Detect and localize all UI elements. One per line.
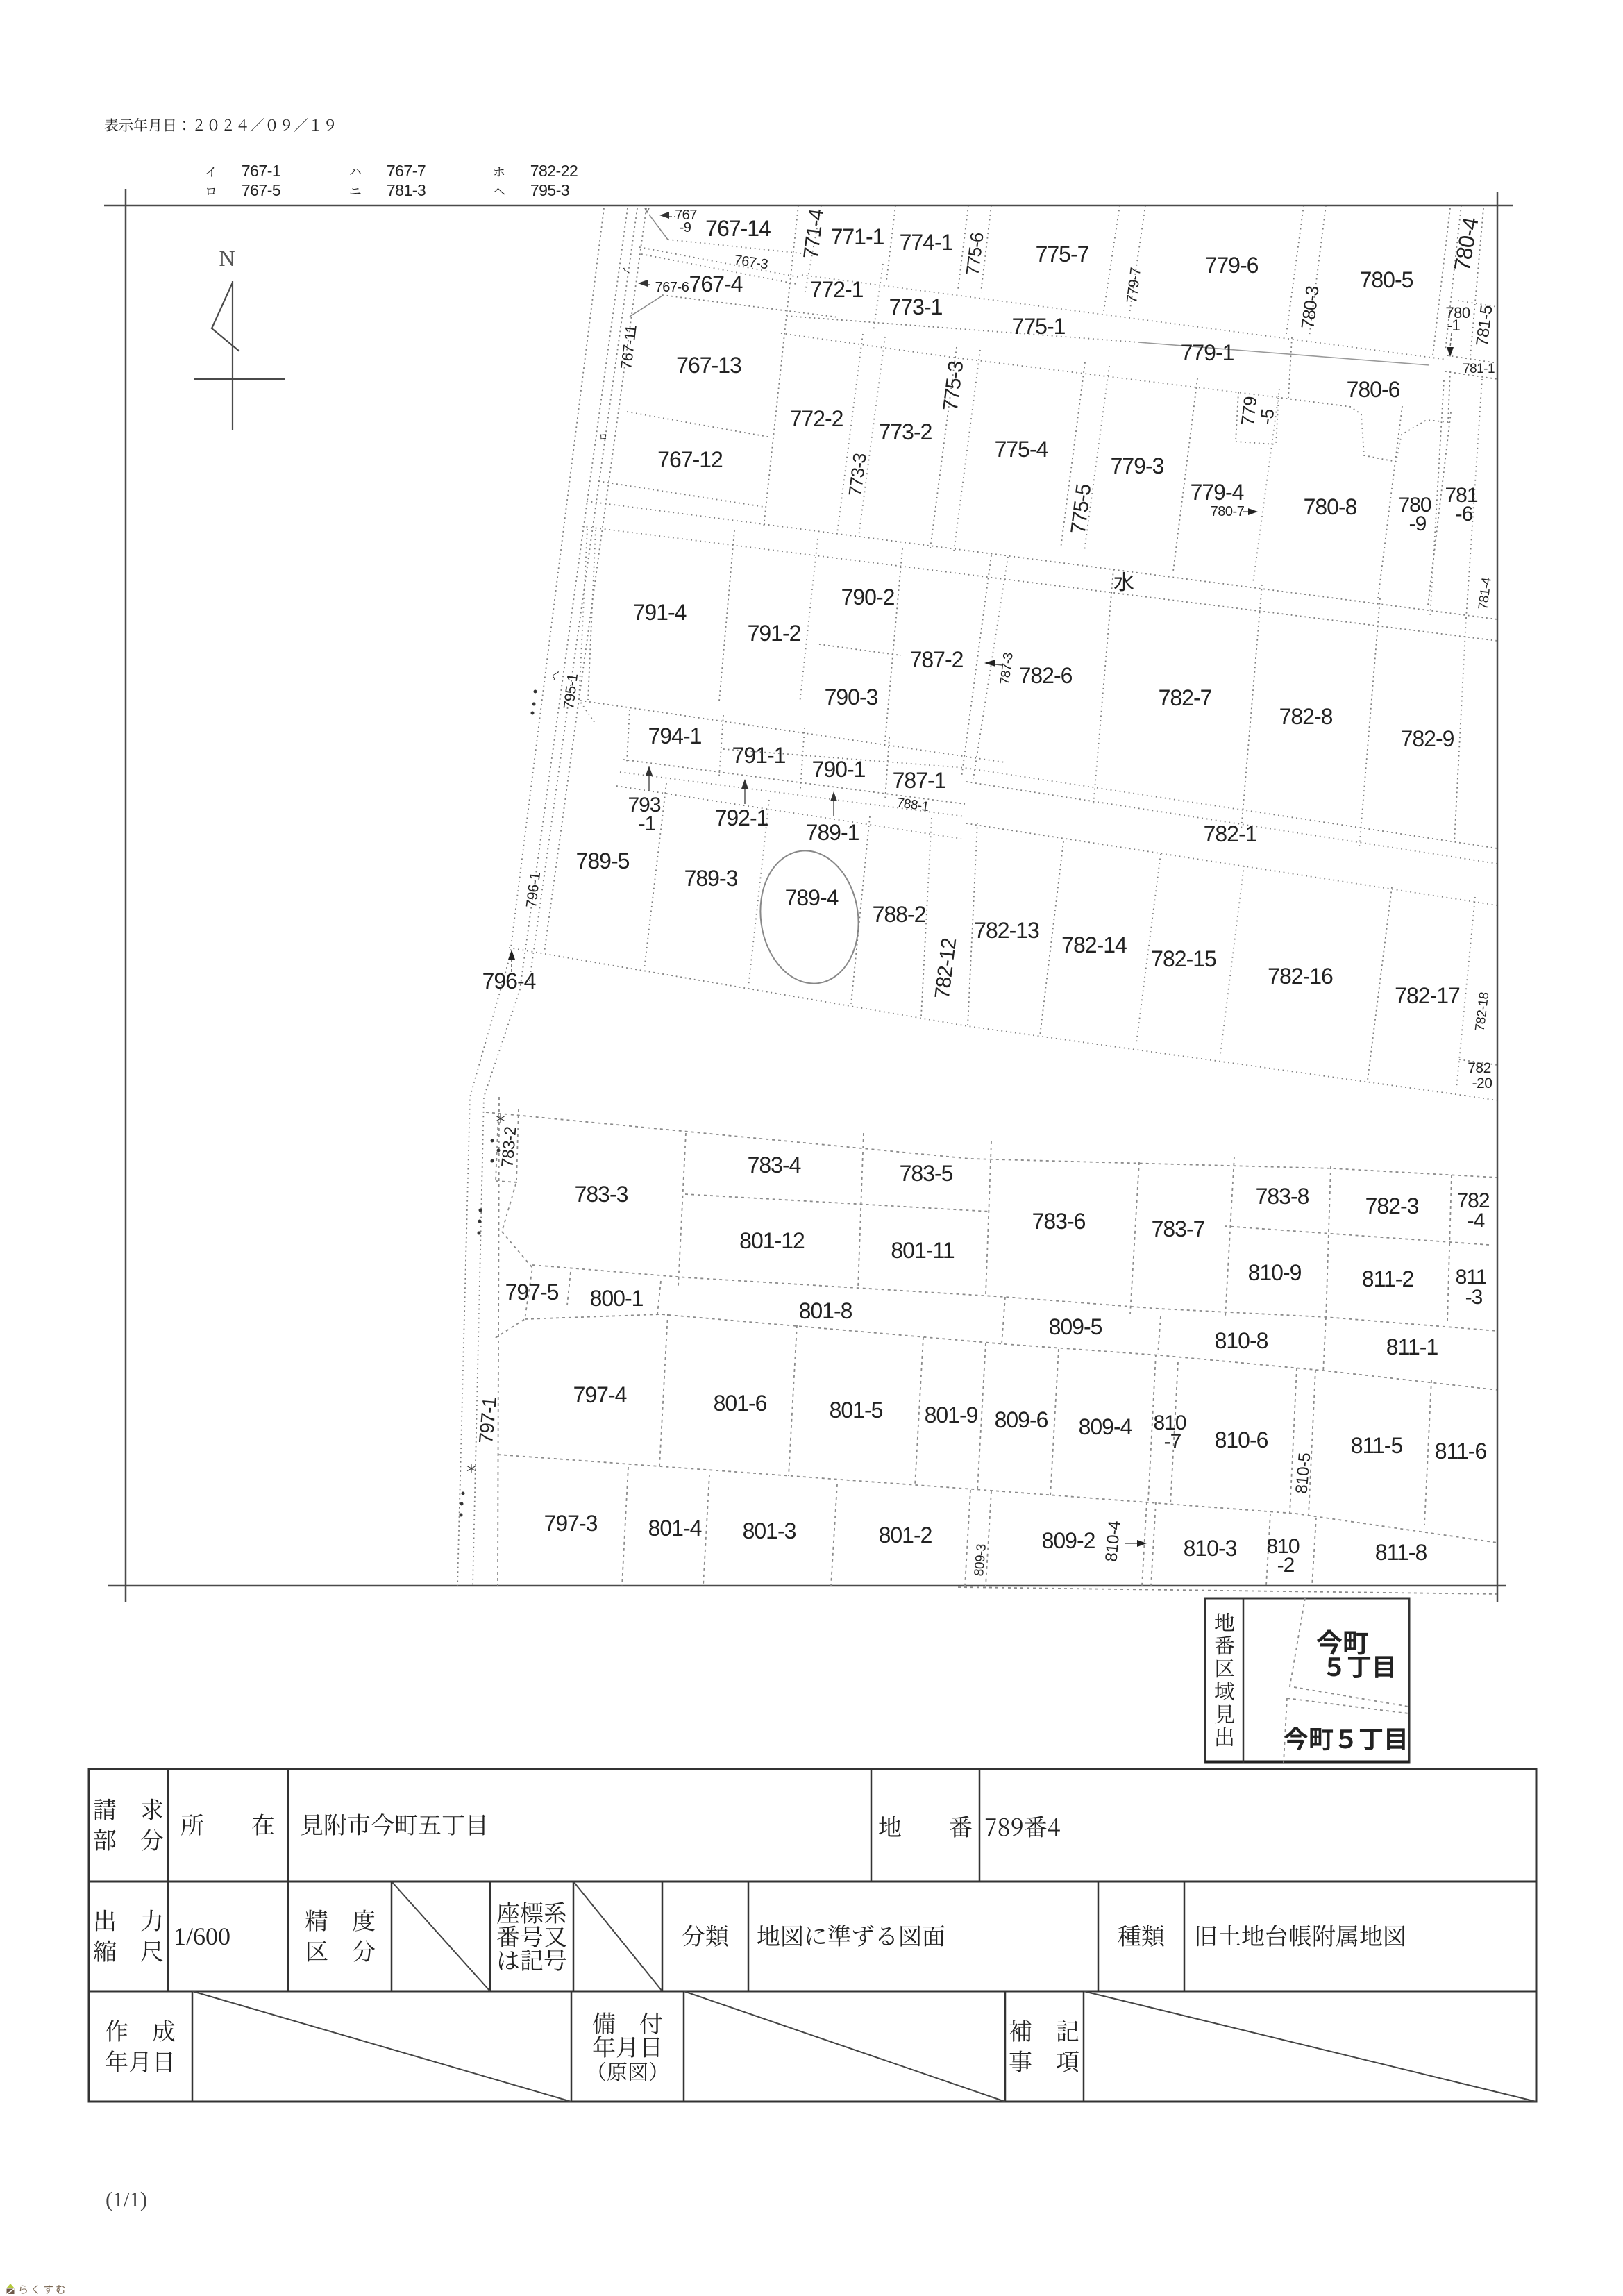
svg-text:783-2: 783-2 [498,1125,520,1168]
svg-text:-20: -20 [1472,1075,1492,1091]
svg-text:(1/1): (1/1) [106,2187,147,2211]
svg-text:-9: -9 [680,220,691,235]
svg-text:795-3: 795-3 [530,181,569,199]
svg-text:783-7: 783-7 [1152,1216,1205,1241]
svg-text:-1: -1 [639,812,656,835]
svg-text:791-4: 791-4 [633,600,687,625]
svg-text:789-3: 789-3 [684,866,738,891]
svg-text:772-2: 772-2 [790,406,843,431]
svg-text:780-6: 780-6 [1347,377,1400,402]
svg-text:781-1: 781-1 [1463,362,1495,376]
svg-text:810-6: 810-6 [1215,1427,1268,1452]
svg-text:779-1: 779-1 [1181,340,1234,365]
svg-text:782-7: 782-7 [1159,685,1212,710]
svg-text:-2: -2 [1277,1554,1295,1577]
svg-text:790-2: 790-2 [841,585,895,610]
svg-text:782-17: 782-17 [1395,983,1460,1008]
svg-text:809-3: 809-3 [972,1543,989,1577]
svg-text:782-9: 782-9 [1401,726,1454,751]
svg-text:810-3: 810-3 [1184,1536,1237,1561]
svg-text:796-4: 796-4 [482,969,536,994]
svg-text:1/600: 1/600 [174,1922,230,1950]
svg-text:767-12: 767-12 [657,447,723,472]
svg-text:782-15: 782-15 [1151,946,1216,971]
svg-text:801-8: 801-8 [799,1298,852,1323]
svg-text:791-2: 791-2 [748,621,801,646]
svg-text:782-1: 782-1 [1204,821,1257,846]
svg-text:797-1: 797-1 [475,1396,501,1444]
svg-text:783-3: 783-3 [575,1182,628,1207]
svg-text:782-16: 782-16 [1268,964,1333,989]
svg-text:809-2: 809-2 [1042,1528,1095,1553]
svg-text:801-11: 801-11 [891,1238,954,1263]
svg-text:779-4: 779-4 [1191,480,1244,505]
svg-text:767-7: 767-7 [387,162,426,180]
svg-text:810-5: 810-5 [1292,1452,1314,1494]
svg-text:801-9: 801-9 [925,1402,978,1427]
svg-text:780-7: 780-7 [1211,504,1245,519]
svg-text:782-8: 782-8 [1279,704,1333,729]
svg-text:787-1: 787-1 [893,768,946,793]
svg-text:811-2: 811-2 [1362,1266,1414,1291]
svg-text:771-1: 771-1 [831,224,884,249]
svg-text:779-6: 779-6 [1205,253,1259,278]
svg-text:-1: -1 [1447,317,1461,334]
svg-text:790-1: 790-1 [812,757,866,782]
svg-text:-9: -9 [1409,512,1427,535]
svg-text:797-5: 797-5 [505,1280,559,1305]
svg-text:783-8: 783-8 [1256,1184,1309,1209]
svg-text:791-1: 791-1 [732,743,786,768]
svg-text:775-7: 775-7 [1036,242,1089,267]
svg-text:782: 782 [1468,1060,1491,1076]
svg-text:811-5: 811-5 [1351,1433,1403,1458]
svg-text:779-3: 779-3 [1111,453,1164,478]
svg-text:783-5: 783-5 [900,1161,953,1186]
svg-text:801-3: 801-3 [743,1518,796,1543]
svg-text:767-5: 767-5 [242,181,280,199]
svg-text:789-4: 789-4 [785,885,839,910]
svg-text:789-1: 789-1 [806,820,859,845]
svg-text:-7: -7 [1164,1430,1181,1453]
svg-text:801-12: 801-12 [739,1228,805,1253]
svg-text:781-3: 781-3 [387,181,426,199]
svg-text:811-1: 811-1 [1386,1334,1438,1359]
svg-text:811-6: 811-6 [1435,1439,1487,1464]
svg-text:797-4: 797-4 [573,1382,627,1407]
svg-text:767-14: 767-14 [705,216,771,241]
svg-text:767-13: 767-13 [676,353,741,378]
svg-text:782-3: 782-3 [1365,1193,1419,1218]
svg-text:809-6: 809-6 [995,1407,1048,1432]
svg-text:787-2: 787-2 [910,647,964,672]
svg-text:775-4: 775-4 [995,437,1048,462]
svg-text:790-3: 790-3 [825,685,878,710]
svg-text:801-5: 801-5 [830,1398,883,1423]
svg-text:782-6: 782-6 [1019,663,1073,688]
svg-text:-3: -3 [1465,1286,1483,1309]
svg-text:-4: -4 [1468,1209,1485,1232]
svg-text:800-1: 800-1 [590,1286,644,1311]
svg-text:811-8: 811-8 [1375,1540,1427,1565]
svg-text:767-4: 767-4 [689,271,743,296]
svg-text:801-2: 801-2 [879,1523,932,1548]
svg-text:772-1: 772-1 [810,277,864,302]
svg-text:794-1: 794-1 [648,723,702,748]
svg-text:797-3: 797-3 [544,1511,598,1536]
svg-text:801-4: 801-4 [648,1516,702,1541]
svg-text:782-14: 782-14 [1061,932,1127,957]
svg-text:809-5: 809-5 [1049,1314,1102,1339]
svg-text:767-6: 767-6 [655,280,689,295]
svg-text:782-13: 782-13 [974,918,1039,943]
svg-text:801-6: 801-6 [714,1391,767,1416]
svg-text:783-6: 783-6 [1032,1209,1086,1234]
svg-text:773-2: 773-2 [879,419,932,444]
svg-text:774-1: 774-1 [900,230,953,255]
svg-text:792-1: 792-1 [715,805,768,830]
svg-text:809-4: 809-4 [1079,1414,1132,1439]
svg-text:N: N [219,246,235,271]
svg-text:810-8: 810-8 [1215,1328,1268,1353]
svg-text:810-9: 810-9 [1248,1260,1302,1285]
svg-text:783-4: 783-4 [748,1153,801,1178]
svg-text:-6: -6 [1456,503,1473,526]
svg-text:780-5: 780-5 [1360,267,1413,292]
svg-text:-5: -5 [1256,408,1278,426]
svg-text:788-2: 788-2 [873,902,926,927]
svg-text:810-4: 810-4 [1102,1520,1124,1562]
svg-text:782-22: 782-22 [530,162,578,180]
svg-text:767-1: 767-1 [242,162,280,180]
svg-text:780-8: 780-8 [1304,494,1357,519]
svg-text:773-1: 773-1 [889,294,943,319]
svg-text:789-5: 789-5 [576,848,630,873]
